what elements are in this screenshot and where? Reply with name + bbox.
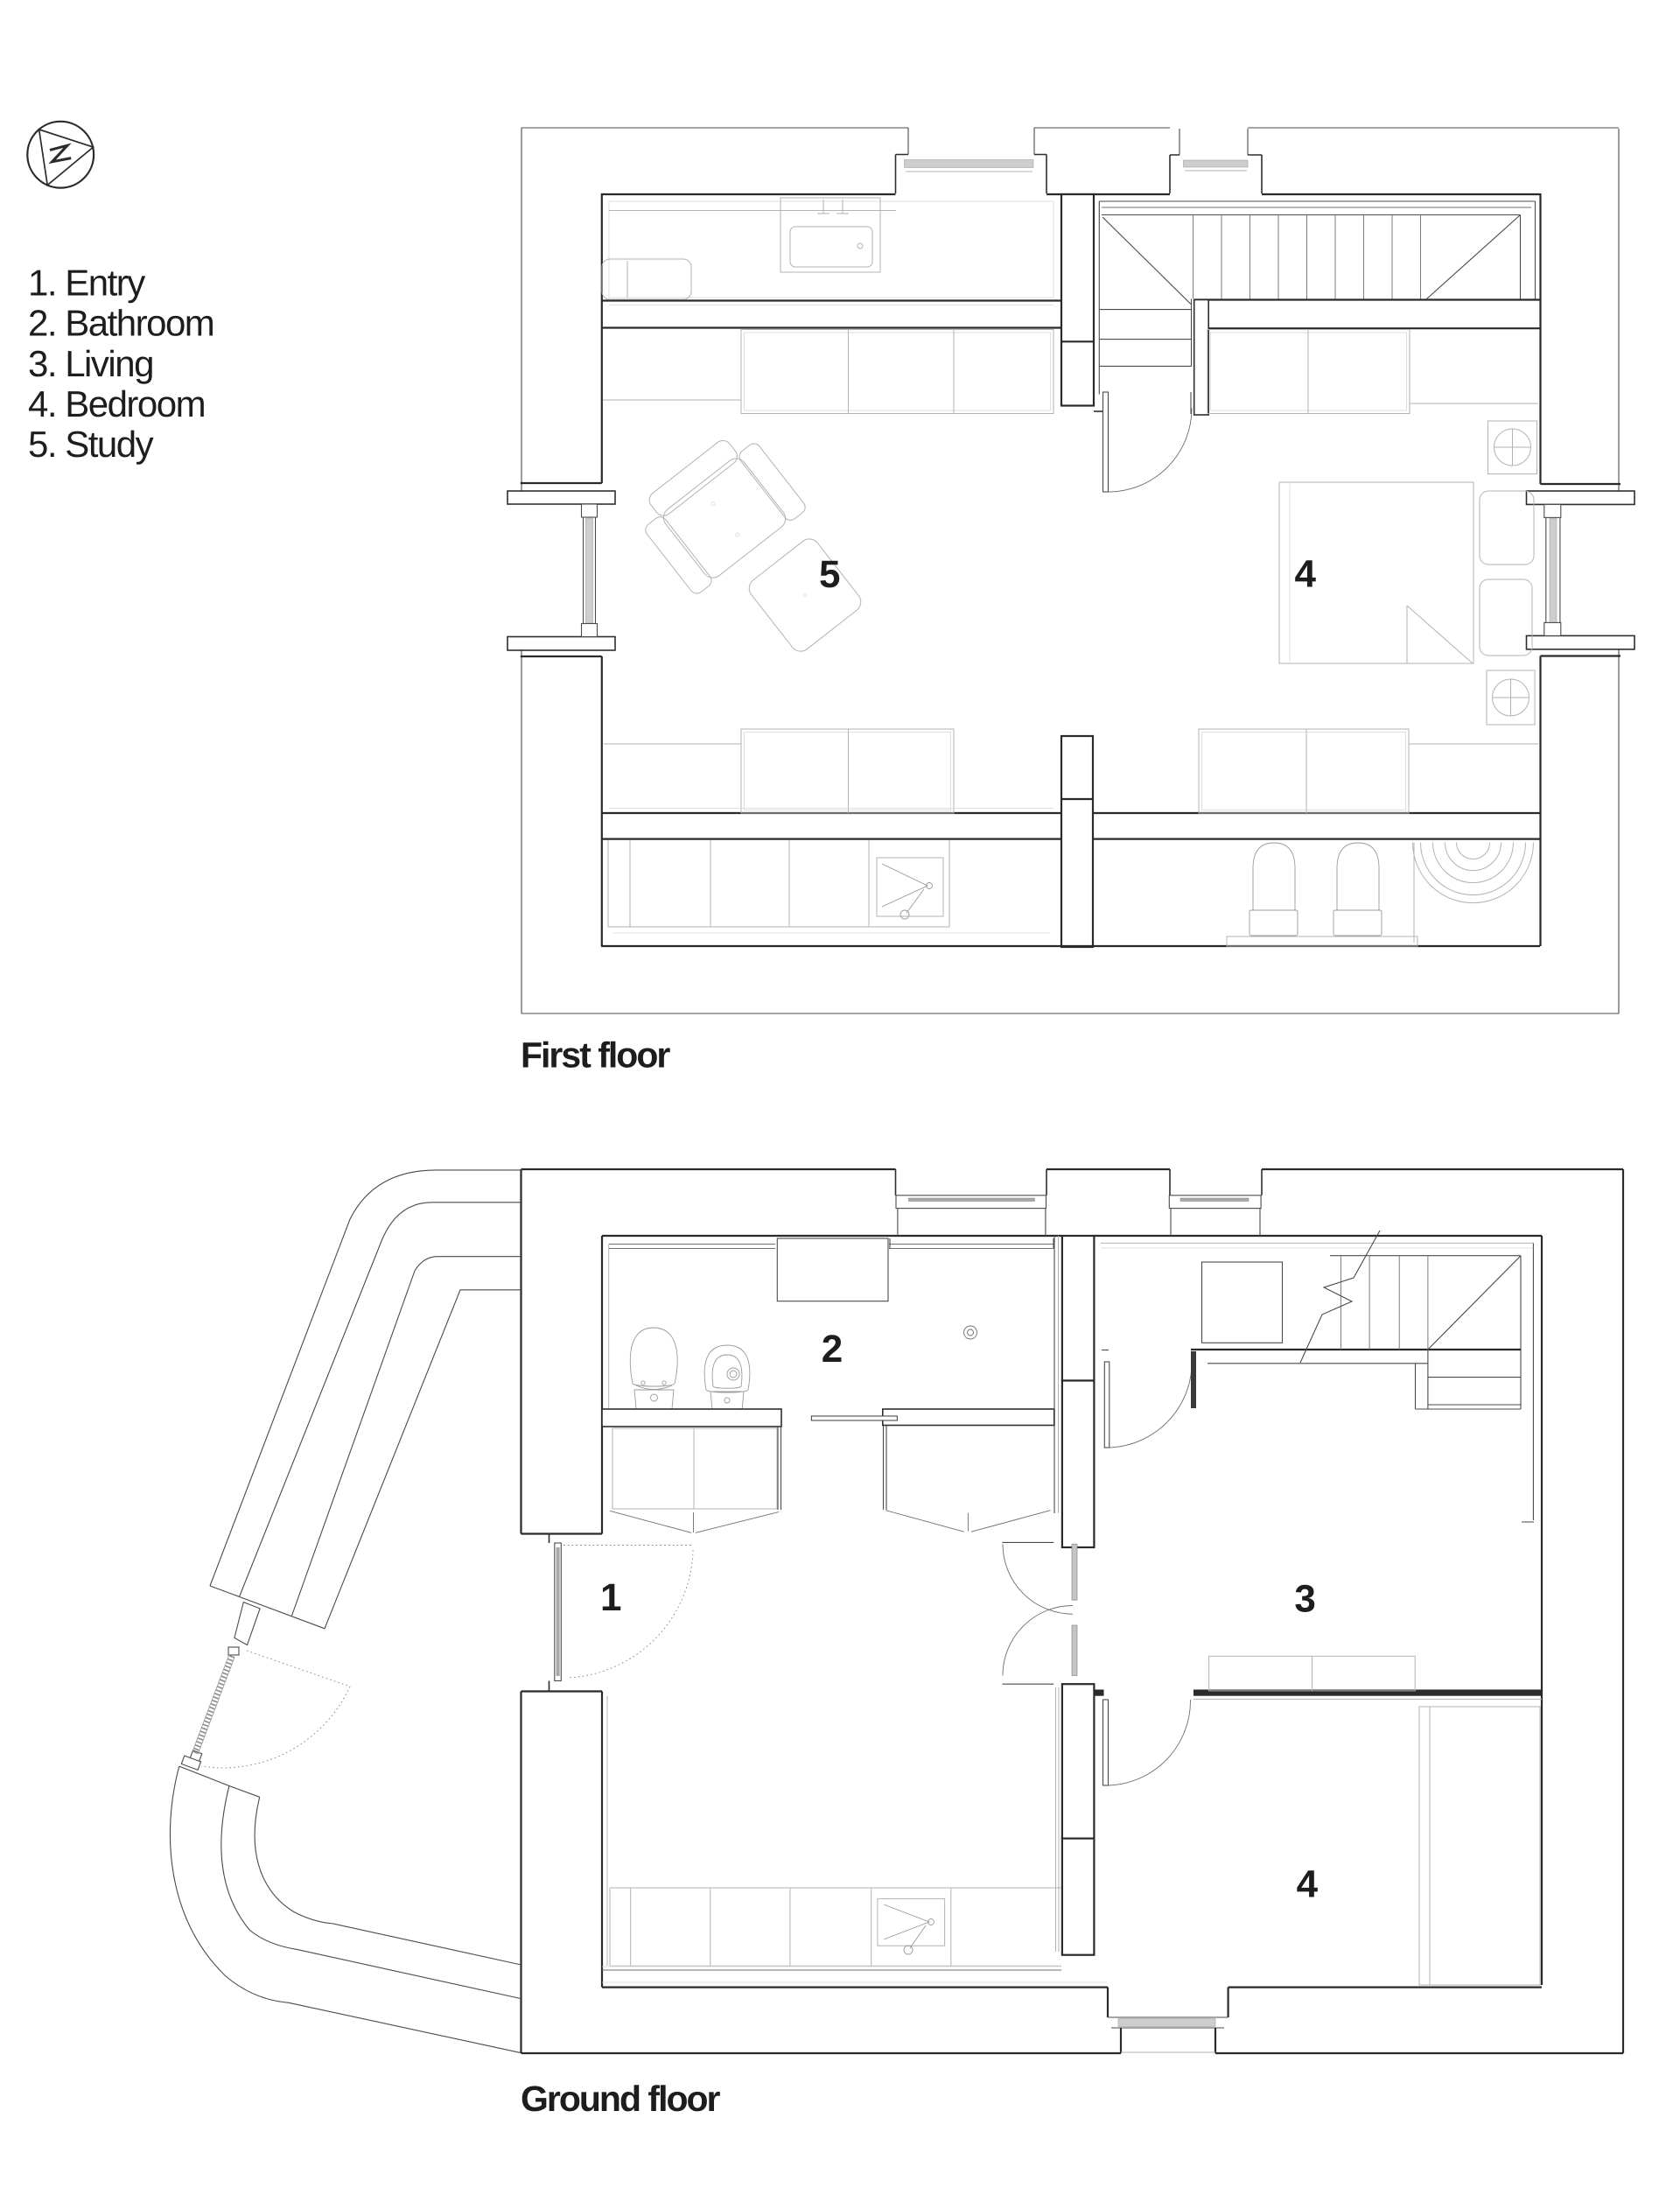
svg-text:4. Bedroom: 4. Bedroom <box>28 383 205 424</box>
svg-text:3: 3 <box>1294 1578 1315 1621</box>
svg-text:1: 1 <box>600 1576 621 1619</box>
svg-text:4: 4 <box>1297 1863 1319 1906</box>
svg-text:First floor: First floor <box>521 1035 670 1076</box>
svg-text:Ground floor: Ground floor <box>521 2079 721 2119</box>
svg-text:5. Study: 5. Study <box>28 424 154 465</box>
svg-text:1. Entry: 1. Entry <box>28 262 145 303</box>
svg-text:2: 2 <box>822 1328 843 1371</box>
svg-text:3. Living: 3. Living <box>28 343 153 384</box>
svg-text:5: 5 <box>819 553 840 596</box>
svg-text:4: 4 <box>1295 553 1317 596</box>
svg-text:2. Bathroom: 2. Bathroom <box>28 303 213 344</box>
